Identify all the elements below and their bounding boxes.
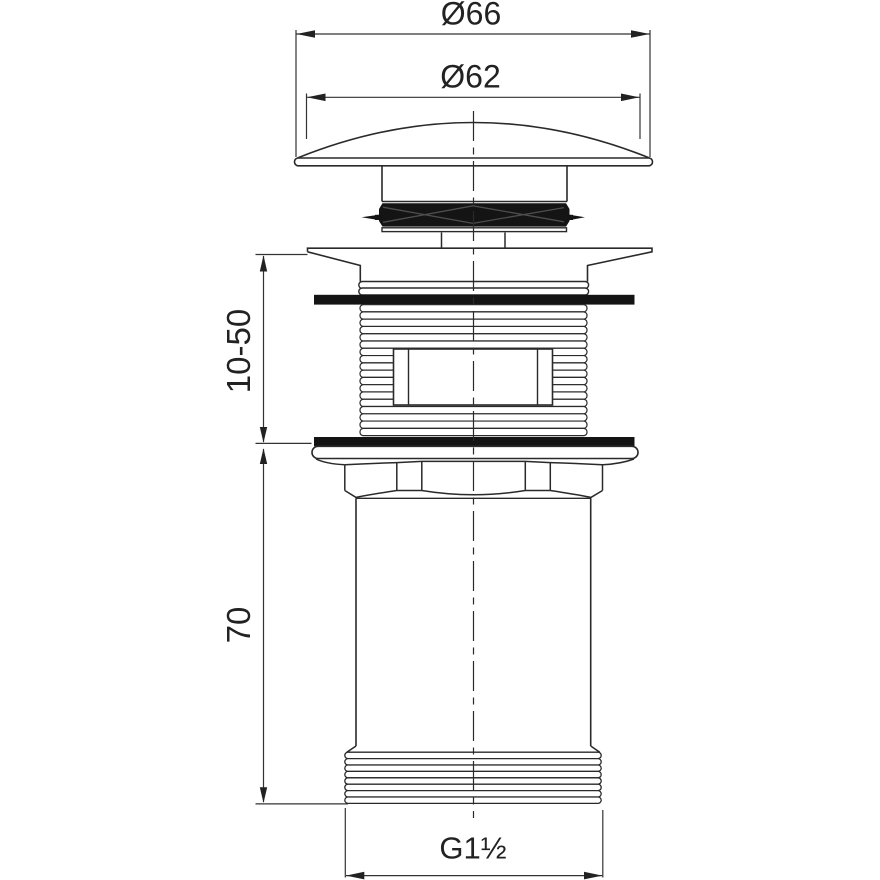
svg-text:Ø66: Ø66 (441, 0, 501, 32)
svg-text:G1½: G1½ (439, 831, 506, 866)
svg-text:10-50: 10-50 (220, 309, 257, 393)
svg-text:Ø62: Ø62 (440, 58, 500, 94)
svg-text:70: 70 (220, 607, 257, 644)
